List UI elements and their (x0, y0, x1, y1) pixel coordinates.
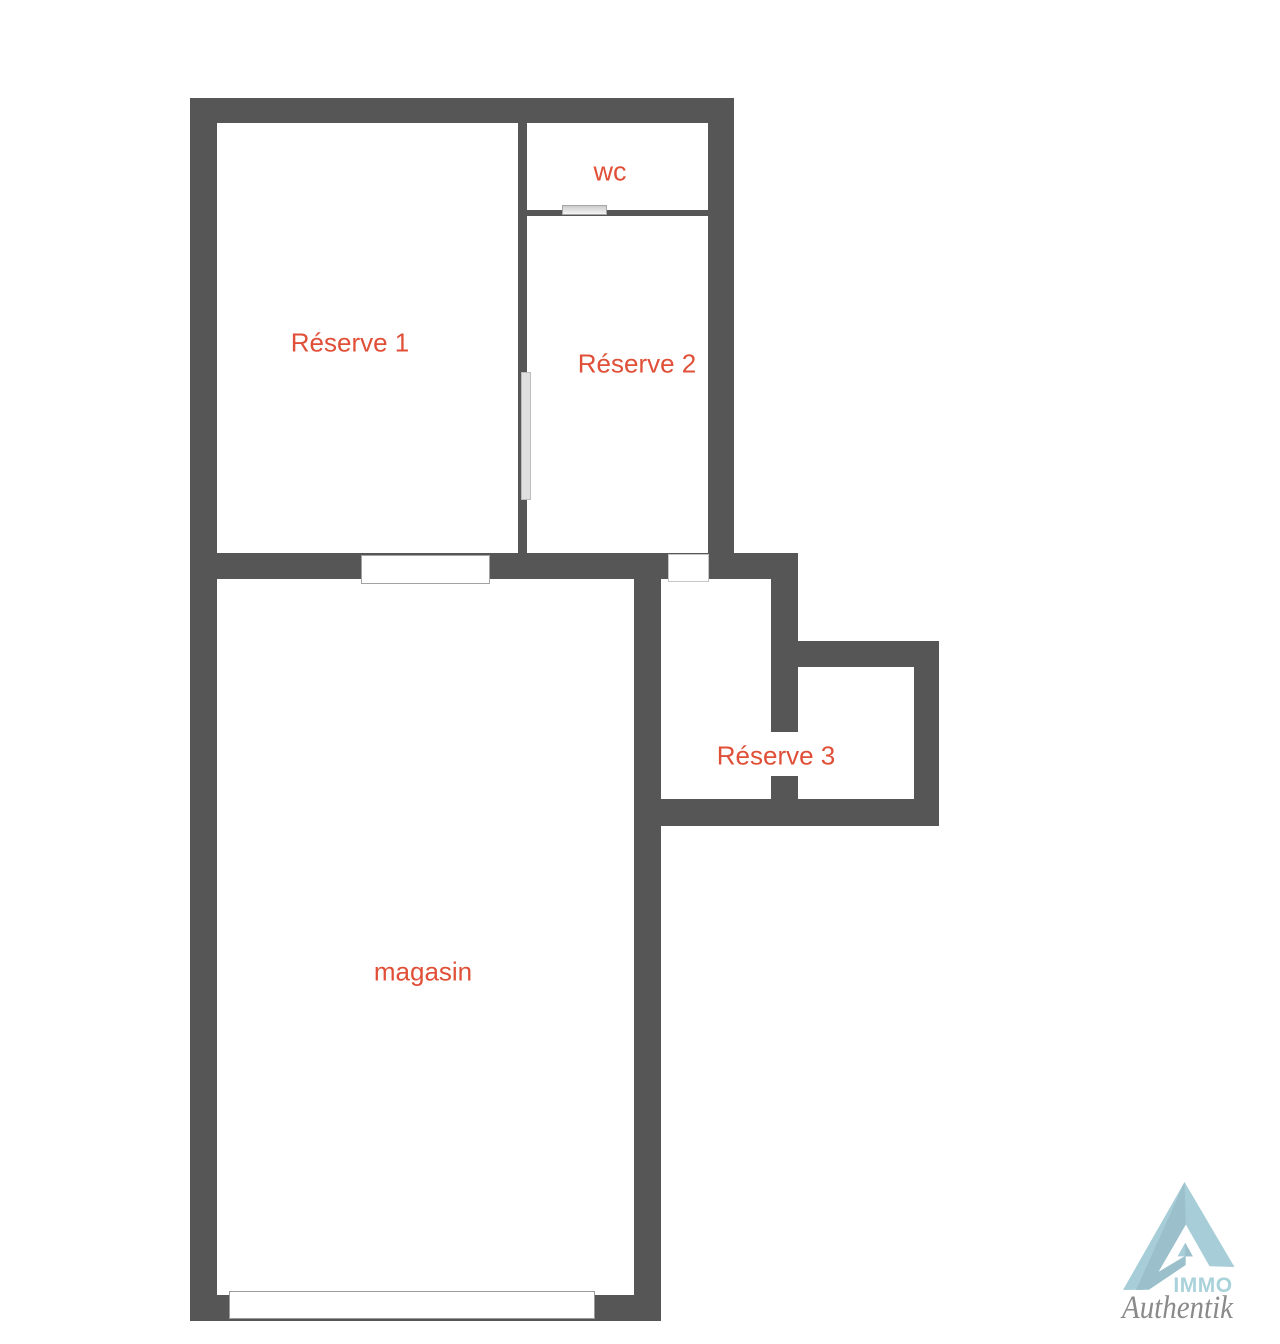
svg-text:Authentik: Authentik (1120, 1290, 1234, 1326)
